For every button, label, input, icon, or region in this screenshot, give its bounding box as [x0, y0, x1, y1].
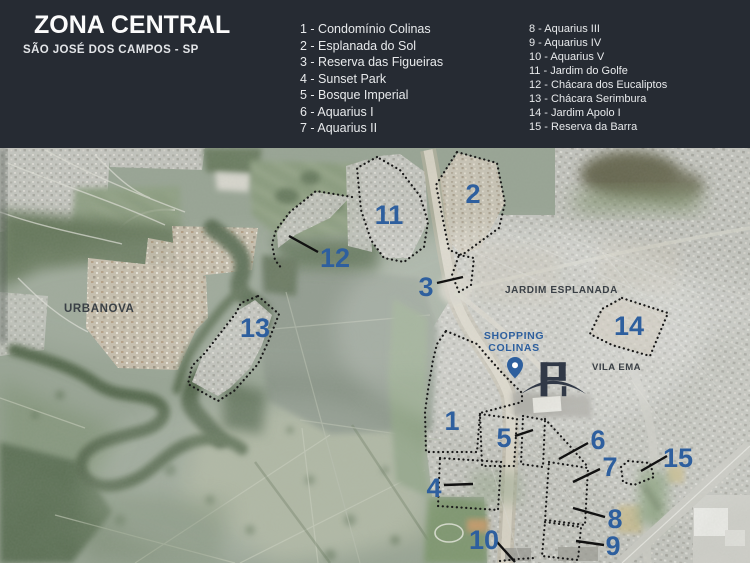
svg-text:6: 6	[590, 425, 605, 455]
svg-text:1: 1	[444, 406, 459, 436]
svg-text:9: 9	[605, 531, 620, 561]
svg-text:7: 7	[602, 452, 617, 482]
svg-text:JARDIM ESPLANADA: JARDIM ESPLANADA	[505, 285, 618, 296]
svg-text:12: 12	[320, 243, 350, 273]
svg-text:11: 11	[375, 200, 404, 230]
svg-text:14: 14	[614, 311, 644, 341]
svg-text:URBANOVA: URBANOVA	[64, 303, 134, 315]
svg-text:5: 5	[496, 423, 511, 453]
svg-text:15: 15	[663, 443, 693, 473]
svg-text:SHOPPING: SHOPPING	[484, 330, 544, 342]
svg-text:13: 13	[240, 313, 270, 343]
svg-text:10: 10	[469, 525, 499, 555]
svg-text:VILA EMA: VILA EMA	[592, 362, 641, 373]
svg-text:8: 8	[607, 504, 622, 534]
svg-text:COLINAS: COLINAS	[488, 342, 539, 354]
svg-text:4: 4	[426, 473, 441, 503]
svg-text:3: 3	[418, 272, 433, 302]
svg-text:2: 2	[465, 179, 480, 209]
